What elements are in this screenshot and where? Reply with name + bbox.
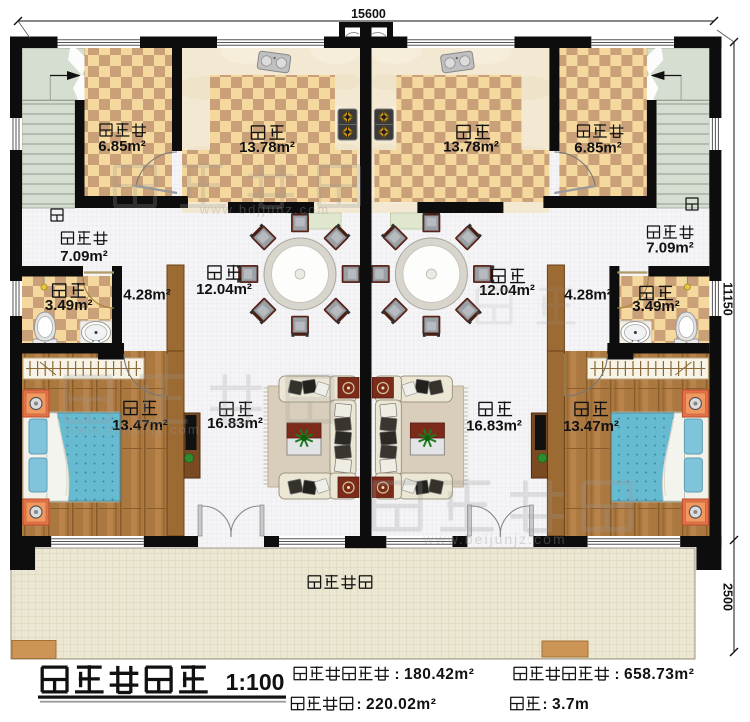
svg-text:13.78m²: 13.78m² [443,139,499,156]
svg-text::: : [543,696,548,713]
svg-text:180.42m²: 180.42m² [404,666,474,683]
svg-text:6.85m²: 6.85m² [98,138,146,155]
svg-text:6.85m²: 6.85m² [574,140,622,157]
svg-text:3.49m²: 3.49m² [632,298,680,315]
svg-text:13.78m²: 13.78m² [239,139,295,156]
svg-text:7.09m²: 7.09m² [60,248,108,265]
svg-text:12.04m²: 12.04m² [196,281,252,298]
svg-text::: : [395,666,400,683]
svg-text:3.49m²: 3.49m² [45,297,93,314]
svg-text:11150: 11150 [721,282,735,315]
svg-text:4.28m²: 4.28m² [123,287,171,304]
svg-text::: : [615,666,620,683]
svg-text:1:100: 1:100 [226,669,285,695]
svg-text::: : [357,696,362,713]
svg-text:658.73m²: 658.73m² [624,666,694,683]
svg-text:www.bdjjunz.com: www.bdjjunz.com [199,202,330,217]
svg-text:16.83m²: 16.83m² [466,418,522,435]
svg-text:www.beijunjz.com: www.beijunjz.com [64,422,200,437]
svg-text:www.beijunjz.com: www.beijunjz.com [422,531,566,547]
svg-text:13.47m²: 13.47m² [563,418,619,435]
svg-text:2500: 2500 [721,583,735,611]
svg-text:220.02m²: 220.02m² [366,696,436,713]
svg-text:3.7m: 3.7m [552,696,589,713]
svg-text:15600: 15600 [351,7,386,21]
svg-text:7.09m²: 7.09m² [646,240,694,257]
